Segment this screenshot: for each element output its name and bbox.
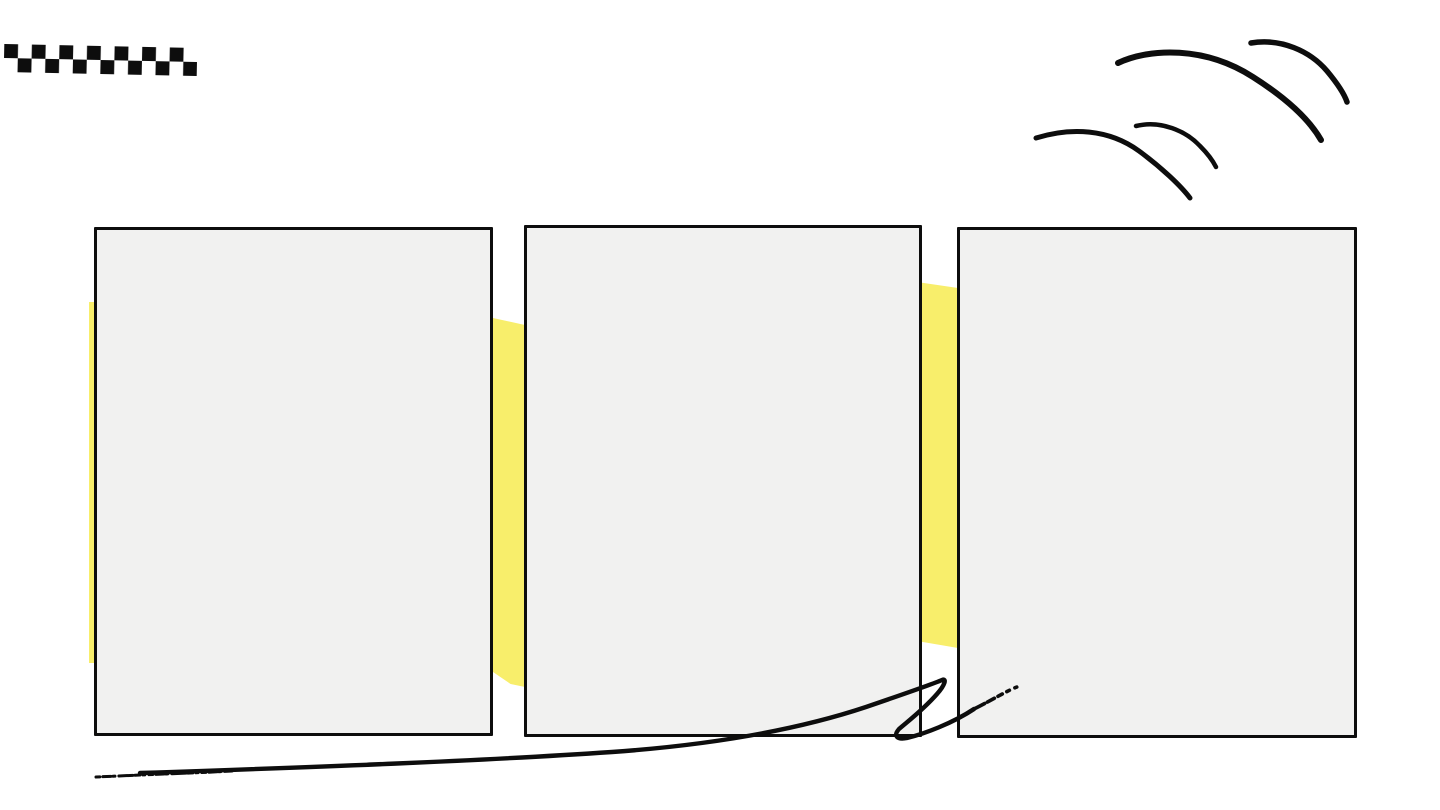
highlighter-band-segment-middle	[493, 316, 525, 687]
arc-stroke-small-echo	[1136, 124, 1216, 167]
highlighter-band-segment-right	[917, 280, 958, 648]
arc-stroke-small	[1036, 131, 1190, 198]
arc-stroke-large-echo	[1251, 42, 1347, 102]
swoosh-grit-start	[96, 771, 232, 777]
placeholder-panel-3[interactable]	[957, 227, 1357, 738]
placeholder-panel-1[interactable]	[94, 227, 493, 736]
arc-stroke-large	[1118, 52, 1321, 140]
placeholder-panel-2[interactable]	[524, 225, 922, 737]
checkered-flag-icon	[4, 44, 198, 76]
slide-canvas	[0, 0, 1440, 810]
